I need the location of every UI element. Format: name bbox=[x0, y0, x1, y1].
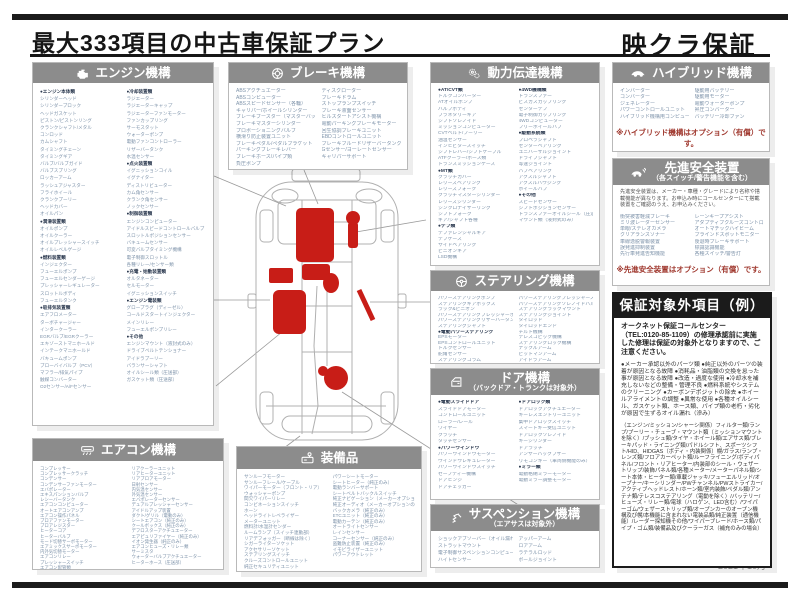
section-title: サスペンション機構 bbox=[469, 508, 580, 521]
parts-list-col1: インバーターコンバータージェネレーターパワーコントロールユニットハイブリッド機構… bbox=[620, 88, 689, 120]
part-item: ●エンジン電装類 bbox=[127, 297, 208, 304]
parts-list-col1: ●電動スライドドアスライドドアモーターコントロールユニットローラー/レールワイヤ… bbox=[438, 400, 513, 491]
parts-list-col1: ショックアブソーバー（オイル漏れのみ対象）ストラットマウント電子制御サスペンショ… bbox=[438, 536, 513, 564]
section-steering: ステアリング機構 パワーステアリングポンプステアリングギアボックスラック&ピニオ… bbox=[430, 270, 600, 364]
part-item: サーモスタット bbox=[127, 124, 208, 131]
section-equipment: 装備品 サンルーフモーターサンルーフレール/ケーブルワイパーモーター（フロント・… bbox=[236, 446, 422, 572]
exhaust-line bbox=[312, 286, 318, 434]
brake-disc-icon bbox=[271, 67, 284, 80]
part-item: 触媒コンバーター bbox=[40, 376, 121, 383]
part-item: LSD機構 bbox=[438, 255, 513, 261]
part-item: タイミングギア bbox=[40, 153, 121, 160]
part-item: フライホイール bbox=[40, 189, 121, 196]
part-item: エキゾーストマニホールド bbox=[40, 340, 121, 347]
section-door: ドア機構 （バックドア・トランクは対象外） ●電動スライドドアスライドドアモータ… bbox=[430, 368, 600, 500]
parts-list-col2: 駆動用バッテリー駆動用モーター電動ウォーターポンプ昇圧コンバーターバッテリー冷却… bbox=[695, 88, 764, 120]
part-item: マフラー/排気パイプ bbox=[40, 369, 121, 376]
section-subtitle: （各スイッチ/警告機能を含む） bbox=[652, 175, 752, 182]
nav-device-icon bbox=[300, 451, 315, 465]
part-item: エンジンコンピューター bbox=[127, 218, 208, 225]
part-item: バランサーシャフト bbox=[127, 362, 208, 369]
part-item: ブレーキ液面センサー bbox=[322, 108, 402, 115]
warranty-poster: 最大333項目の中古車保証プラン 映クラ保証 bbox=[0, 0, 800, 600]
section-subtitle: （バックドア・トランクは対象外） bbox=[469, 385, 581, 392]
part-item: バルブ/バルブガイド bbox=[40, 160, 121, 167]
section-aircon-header: エアコン機構 bbox=[33, 439, 223, 461]
part-item: ノックセンサー bbox=[127, 203, 208, 210]
rear-bumper-beam bbox=[282, 416, 372, 432]
engine-icon bbox=[75, 67, 89, 80]
part-item: 各種スイッチ/警告灯 bbox=[695, 251, 764, 257]
part-item: オルタネーター bbox=[127, 275, 208, 282]
part-item: クランクプーリー bbox=[40, 196, 121, 203]
part-item: ブレーキホース/パイプ類 bbox=[236, 154, 316, 161]
section-steering-header: ステアリング機構 bbox=[431, 271, 599, 291]
part-item: ヒルスタートアシスト機構 bbox=[322, 114, 402, 121]
part-item: ブレーキドラム bbox=[322, 95, 402, 102]
section-suspension: サスペンション機構 （エアサスは対象外） ショックアブソーバー（オイル漏れのみ対… bbox=[430, 504, 600, 568]
part-item: ABSアクチュエーター bbox=[236, 88, 316, 95]
part-item: ドライブベルトテンショナー bbox=[127, 347, 208, 354]
section-title: ハイブリッド機構 bbox=[652, 67, 752, 80]
part-item: ●点火装置類 bbox=[127, 160, 208, 167]
part-item: ブローバイバルブ（PCV） bbox=[40, 362, 121, 369]
engine-highlight bbox=[296, 208, 334, 262]
parts-list-col1: サンルーフモーターサンルーフレール/ケーブルワイパーモーター（フロント・リア）ウ… bbox=[244, 474, 327, 569]
suspension-spring-icon bbox=[450, 512, 463, 525]
parts-list-col1: ●エンジン本体類シリンダーヘッドシリンダーブロックヘッドガスケットピストン/ピス… bbox=[40, 88, 121, 391]
part-item: インタークーラー bbox=[40, 326, 121, 333]
part-item: 電子制御サスペンションコンピューター bbox=[438, 550, 513, 557]
part-item: スロットルボディ bbox=[40, 290, 121, 297]
part-item: ラテラルロッド bbox=[519, 550, 594, 557]
part-item: イグナイター bbox=[127, 174, 208, 181]
fuel-tank-highlight bbox=[273, 290, 306, 334]
part-item: エンジンマウント（液封式のみ） bbox=[127, 340, 208, 347]
part-item: アイドルスピードコントロールバルブ bbox=[127, 225, 208, 232]
shock-highlight bbox=[359, 290, 373, 320]
parts-list-col2: ●冷却装置類ラジエーターラジエーターキャップラジエーターファンモーターファンカッ… bbox=[127, 88, 208, 391]
excluded-intro-text: オークネット保証コールセンター（TEL:0120-85-1109）の修理承認前に… bbox=[614, 318, 770, 357]
part-item: グロープラグ（ディーゼル） bbox=[127, 304, 208, 311]
parts-list-col1: ●AT/CVT類トルクコンバーターATオイルポンプバルブボディプラネタリーギアシ… bbox=[438, 88, 513, 262]
part-item: クランク角センサー bbox=[127, 196, 208, 203]
left-mirror bbox=[248, 294, 256, 308]
part-item: セルモーター bbox=[127, 282, 208, 289]
part-item: クランクシャフト/メタル bbox=[40, 124, 121, 131]
excluded-bullet-list: ●メーカー承認以外のパーツ類 ●純正以外のパーツの装着が原因となる故障 ●消耗品… bbox=[614, 357, 770, 418]
parts-list-col1: コンプレッサーコンプレッサークラッチコンデンサーコンデンサーファンモーターエバポ… bbox=[40, 466, 126, 570]
section-excluded-header: 保証対象外項目（例） bbox=[614, 294, 770, 318]
part-item: インジェクター bbox=[40, 261, 121, 268]
part-item: ブレーキフルードリザーバータンク bbox=[322, 141, 402, 148]
part-item: ハイブリッド機構用コンピューター bbox=[620, 114, 689, 120]
parts-list-col1: 衝突被害軽減ブレーキミリ波レーダーセンサー単眼/ステレオカメラクリアランスソナー… bbox=[620, 214, 689, 257]
part-item: ワイパーモーター（フロント・リア） bbox=[244, 485, 327, 491]
part-item: コールドスタートインジェクター bbox=[127, 311, 208, 318]
part-item: オイルプレッシャースイッチ bbox=[40, 239, 121, 246]
part-item: オイルシール類（圧送部） bbox=[127, 369, 208, 376]
part-item: ●冷却装置類 bbox=[127, 88, 208, 95]
part-item: 先行車発進告知機能 bbox=[620, 251, 689, 257]
parts-list-col2: パワーステアリングプレッシャースイッチパワーステアリングソレノイドバルブステアリ… bbox=[519, 296, 594, 363]
section-title: ブレーキ機構 bbox=[290, 67, 365, 80]
parts-list-col2: ●4WD機構類トランスファービスカスカップリングセンターデフ電子制御カップリング… bbox=[519, 88, 594, 262]
parts-list-col2: アッパーアームロアアームラテラルロッドボールジョイント bbox=[519, 536, 594, 564]
part-item: ディスクローター bbox=[322, 88, 402, 95]
part-item: フューエルセンダーゲージ bbox=[40, 275, 121, 282]
part-item: ブラインドスポットモニター bbox=[695, 232, 764, 238]
part-item: ●燃料装置類 bbox=[40, 254, 121, 261]
section-title: ドア機構 bbox=[500, 372, 550, 385]
part-item: オイルレベルゲージ bbox=[40, 246, 121, 253]
section-powertrain-header: 動力伝達機構 bbox=[431, 63, 599, 83]
part-item: ファンカップリング bbox=[127, 117, 208, 124]
section-title: 装備品 bbox=[321, 452, 359, 465]
section-equipment-header: 装備品 bbox=[237, 447, 421, 469]
part-item: アイドラアーム bbox=[519, 358, 594, 364]
part-item: ステアリングコラム bbox=[438, 358, 513, 364]
part-item: ヒーターホース（圧送部） bbox=[132, 560, 218, 565]
part-item: ●潤滑装置類 bbox=[40, 218, 121, 225]
parts-list-col1: ABSアクチュエーターABSコンピューターABSスピードセンサー（各輪）キャリパ… bbox=[236, 88, 316, 167]
part-item: 電動ファンコントローラー bbox=[127, 138, 208, 145]
part-item: ストラットマウント bbox=[438, 543, 513, 550]
aircon-icon bbox=[80, 444, 95, 457]
hybrid-car-icon bbox=[630, 67, 646, 79]
excluded-detail-text: （エンジン/ミッション/シャーシ関係）フィルター類/ランプ/プーリー・チューブ・… bbox=[614, 418, 770, 532]
part-item: ストップランプスイッチ bbox=[322, 101, 402, 108]
part-item: 電動パーキングブレーキモーター bbox=[322, 121, 402, 128]
part-item: ラジエーター bbox=[127, 95, 208, 102]
section-brake: ブレーキ機構 ABSアクチュエーターABSコンピューターABSスピードセンサー（… bbox=[228, 62, 408, 170]
part-item: ターボチャージャー bbox=[40, 319, 121, 326]
parts-list-col1: パワーステアリングポンプステアリングギアボックスラック&ピニオンパワーステアリン… bbox=[438, 296, 513, 363]
part-item: バキュームポンプ bbox=[40, 355, 121, 362]
safety-option-note: ※先進安全装置はオプション（有償）です。 bbox=[613, 261, 769, 277]
part-item: ヘッドカバー bbox=[40, 203, 121, 210]
gears-icon bbox=[467, 67, 481, 80]
section-safety: 先進安全装置 （各スイッチ/警告機能を含む） 先進安全装置は、メーカー・車種・グ… bbox=[612, 158, 770, 286]
section-title: エアコン機構 bbox=[101, 444, 176, 457]
section-engine: エンジン機構 ●エンジン本体類シリンダーヘッドシリンダーブロックヘッドガスケット… bbox=[32, 62, 214, 426]
parts-list-col2: パワーシートモーターシートヒーター（純正のみ）電動ランバーサポートシートベルトバ… bbox=[333, 474, 416, 569]
part-item: ●充電・始動装置類 bbox=[127, 268, 208, 275]
section-powertrain: 動力伝達機構 ●AT/CVT類トルクコンバーターATオイルポンプバルブボディプラ… bbox=[430, 62, 600, 266]
part-item: ロアアーム bbox=[519, 543, 594, 550]
brake-booster-highlight bbox=[348, 222, 358, 248]
part-item: インテークマニホールド bbox=[40, 347, 121, 354]
part-item: ピストン/ピストンリング bbox=[40, 117, 121, 124]
part-item: ●その他 bbox=[127, 333, 208, 340]
part-item: 水温センサー bbox=[127, 153, 208, 160]
section-brake-header: ブレーキ機構 bbox=[229, 63, 407, 83]
part-item: オイルパン bbox=[40, 210, 121, 217]
part-item: Gセンサー/ヨーレートセンサー bbox=[322, 147, 402, 154]
part-item: 回生協調ブレーキユニット bbox=[322, 128, 402, 135]
part-item: ●吸排気装置類 bbox=[40, 304, 121, 311]
part-item: バルブスプリング bbox=[40, 167, 121, 174]
part-item: ●エンジン本体類 bbox=[40, 88, 121, 95]
part-item: ラジエーターキャップ bbox=[127, 102, 208, 109]
part-item: 各種リレー/センサー類 bbox=[127, 261, 208, 268]
part-item: 負圧ポンプ bbox=[236, 161, 316, 168]
part-item: エアフロメーター bbox=[40, 311, 121, 318]
part-item: イグニッションスイッチ bbox=[127, 290, 208, 297]
part-item: O2センサー/A/Fセンサー bbox=[40, 383, 121, 390]
car-chassis-diagram bbox=[222, 166, 432, 451]
section-hybrid: ハイブリッド機構 インバーターコンバータージェネレーターパワーコントロールユニッ… bbox=[612, 62, 770, 152]
part-item: ウォーターポンプ bbox=[127, 131, 208, 138]
part-item: コンロッド bbox=[40, 131, 121, 138]
safety-intro-text: 先進安全装置は、メーカー・車種・グレードにより名称や搭載機能が異なります。お申込… bbox=[613, 185, 769, 209]
section-excluded: 保証対象外項目（例） オークネット保証コールセンター（TEL:0120-85-1… bbox=[612, 292, 772, 568]
part-item: タイミングチェーン bbox=[40, 146, 121, 153]
section-title: ステアリング機構 bbox=[474, 275, 574, 288]
part-item: 横滑り防止装置ユニット bbox=[236, 134, 316, 141]
part-item: マウント類（液封式のみ） bbox=[519, 218, 594, 224]
part-item: EBDコントロールユニット bbox=[322, 134, 402, 141]
part-item: 純正セキュリティユニット bbox=[244, 564, 327, 570]
section-subtitle: （エアサスは対象外） bbox=[490, 521, 560, 528]
part-item: ドアチェッカー bbox=[438, 485, 513, 492]
car-door-icon bbox=[449, 375, 463, 389]
right-mirror bbox=[398, 294, 406, 308]
part-item: 電子制御スロットル bbox=[127, 254, 208, 261]
part-item: イグニッションコイル bbox=[127, 167, 208, 174]
part-item: カムシャフト bbox=[40, 138, 121, 145]
part-item: キャリパー/ホイールシリンダー bbox=[236, 108, 316, 115]
part-item: バッテリー冷却ファン bbox=[695, 114, 764, 120]
part-item: ディストリビューター bbox=[127, 182, 208, 189]
steering-wheel-icon bbox=[455, 275, 468, 288]
section-safety-header: 先進安全装置 （各スイッチ/警告機能を含む） bbox=[613, 159, 769, 185]
part-item: ブレーキペダル/ペダルブラケット bbox=[236, 141, 316, 148]
part-item: ●制御装置類 bbox=[127, 210, 208, 217]
part-item: フューエルタンク bbox=[40, 297, 121, 304]
part-item: アイドラプーリー bbox=[127, 355, 208, 362]
section-title: 動力伝達機構 bbox=[487, 67, 562, 80]
part-item: パワーステアリングプレッシャースイッチ bbox=[519, 296, 594, 302]
part-item: パーキングブレーキレバー bbox=[236, 147, 316, 154]
part-item: ブレーキブースター（マスターバック） bbox=[236, 114, 316, 121]
part-item: オイルポンプ bbox=[40, 225, 121, 232]
part-item: ロッカーアーム bbox=[40, 174, 121, 181]
part-item: フューエルポンプ bbox=[40, 268, 121, 275]
part-item: ラジエーターファンモーター bbox=[127, 110, 208, 117]
parts-list-col2: ●ドアロック類ドアロックアクチュエーターキーレスエントリーユニット集中ドアロック… bbox=[519, 400, 594, 491]
section-suspension-header: サスペンション機構 （エアサスは対象外） bbox=[431, 505, 599, 531]
part-item: スロットルポジションセンサー bbox=[127, 232, 208, 239]
part-item: ショックアブソーバー（オイル漏れのみ対象） bbox=[438, 536, 513, 543]
section-title: 先進安全装置 bbox=[664, 162, 739, 175]
parts-list-col2: ディスクローターブレーキドラムストップランプスイッチブレーキ液面センサーヒルスタ… bbox=[322, 88, 402, 167]
part-item: シリンダーヘッド bbox=[40, 95, 121, 102]
part-item: オイルクーラー bbox=[40, 232, 121, 239]
part-item: ラッシュアジャスター bbox=[40, 182, 121, 189]
part-item: エアコン配管類 bbox=[40, 565, 126, 570]
section-hybrid-header: ハイブリッド機構 bbox=[613, 63, 769, 83]
part-item: カム角センサー bbox=[127, 189, 208, 196]
section-door-header: ドア機構 （バックドア・トランクは対象外） bbox=[431, 369, 599, 395]
part-item: パワーコントロールユニット bbox=[620, 107, 689, 113]
section-title: エンジン機構 bbox=[95, 67, 170, 80]
part-item: ブレーキマスターシリンダー bbox=[236, 121, 316, 128]
part-item: キャリパーサポート bbox=[322, 154, 402, 161]
part-item: 可変バルブタイミング機構 bbox=[127, 246, 208, 253]
part-item: ガスケット類（圧送部） bbox=[127, 376, 208, 383]
part-item: パワーアウトレット bbox=[333, 552, 416, 558]
section-engine-header: エンジン機構 bbox=[33, 63, 213, 83]
part-item: 電動ミラー調整モーター bbox=[519, 478, 594, 485]
part-item: ABSコンピューター bbox=[236, 95, 316, 102]
part-item: メインリレー bbox=[127, 319, 208, 326]
part-item: プロポーショニングバルブ bbox=[236, 128, 316, 135]
part-item: 純正オーディオ（メーカーオプションのみ） bbox=[333, 502, 416, 508]
safety-sensor-car-icon bbox=[630, 166, 646, 179]
part-item: ヘッドガスケット bbox=[40, 110, 121, 117]
pump-highlight bbox=[323, 273, 339, 293]
part-item: リザーバータンク bbox=[127, 146, 208, 153]
part-item: プレッシャーレギュレーター bbox=[40, 282, 121, 289]
part-item: EGRバルブ/EGRクーラー bbox=[40, 333, 121, 340]
parts-list-col2: リアクーラーユニットリアヒーターユニットリアブロアモーター日射センサー内気温セン… bbox=[132, 466, 218, 570]
part-item: アッパーアーム bbox=[519, 536, 594, 543]
part-item: シリンダーブロック bbox=[40, 102, 121, 109]
part-item: フューエルポンプリレー bbox=[127, 326, 208, 333]
parts-list-col2: レーンキープアシストアダプティブクルーズコントロールオートマチックハイビームブラ… bbox=[695, 214, 764, 257]
part-item: ボールジョイント bbox=[519, 557, 594, 564]
part-item: ハイトセンサー bbox=[438, 557, 513, 564]
hybrid-option-note: ※ハイブリッド機構はオプション（有償）です。 bbox=[613, 124, 769, 151]
section-aircon: エアコン機構 コンプレッサーコンプレッサークラッチコンデンサーコンデンサーファン… bbox=[32, 438, 224, 570]
ecu-highlight bbox=[269, 268, 293, 283]
part-item: ABSスピードセンサー（各輪） bbox=[236, 101, 316, 108]
part-item: バキュームセンサー bbox=[127, 239, 208, 246]
